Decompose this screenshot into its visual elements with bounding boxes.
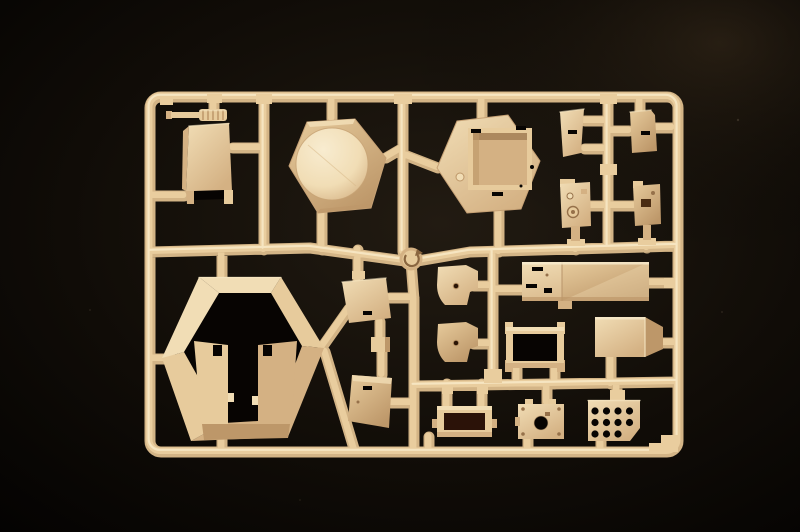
- box-underside-opening: [194, 190, 224, 200]
- skirt-b-dot: [357, 401, 360, 404]
- skirt-a-face: [342, 278, 391, 323]
- box-left-leg: [186, 191, 194, 204]
- grille-hole: [626, 407, 633, 414]
- box-front-face: [186, 123, 232, 191]
- skirt-a-slot: [363, 311, 372, 315]
- gate-block: [600, 94, 617, 104]
- housing-a-detail: [581, 189, 587, 194]
- part-engine-grille: [588, 400, 640, 441]
- fastener: [521, 432, 525, 436]
- rod: [171, 112, 201, 118]
- locating-knob: [456, 173, 464, 181]
- bin-opening: [513, 334, 557, 361]
- shell-inner-sill: [202, 424, 290, 440]
- hatch-frame-top: [437, 406, 492, 410]
- grille-hole: [603, 407, 610, 414]
- plate-slot: [526, 284, 537, 288]
- grille-hole: [614, 430, 621, 437]
- grille-hole: [603, 419, 610, 426]
- part-access-plate: [515, 399, 564, 439]
- gate-block: [664, 278, 674, 288]
- bin-bottom-rail: [506, 363, 564, 368]
- grille-hole: [626, 419, 633, 426]
- recess-side-shadow: [473, 133, 479, 185]
- hatch-frame-bottom: [437, 432, 492, 437]
- part-skirt-wedge-b: [348, 375, 392, 428]
- grille-hole: [603, 430, 610, 437]
- hatch-frame-opening: [444, 413, 485, 430]
- folded-plate-face: [595, 317, 645, 357]
- gate-block: [207, 94, 222, 103]
- part-open-frame-bin: [505, 322, 565, 372]
- photo-stage: [0, 0, 800, 532]
- panel-slot: [492, 192, 503, 196]
- box-right-leg: [224, 190, 233, 204]
- spacer-side: [385, 337, 390, 352]
- wedge-a-slot: [568, 130, 577, 134]
- grille-hole: [614, 407, 621, 414]
- wedge-b-slot: [641, 131, 650, 135]
- bracket-a-hole: [453, 283, 459, 289]
- plate-top-highlight: [522, 262, 649, 265]
- part-spacer-block: [371, 337, 390, 352]
- part-folded-plate: [595, 317, 663, 357]
- recess-floor: [473, 133, 527, 185]
- access-plate-notch: [545, 412, 550, 416]
- sprue-photograph: [0, 0, 800, 532]
- shell-tab: [228, 393, 234, 402]
- gate-block: [442, 386, 453, 394]
- grille-hole: [591, 419, 598, 426]
- housing-a-body: [560, 182, 591, 228]
- part-stowage-box: [182, 123, 233, 204]
- recess-wall-shadow: [473, 133, 527, 140]
- housing-b-dot: [651, 191, 655, 195]
- bracket-b-hole: [453, 340, 459, 346]
- grille-hole: [591, 407, 598, 414]
- fastener: [557, 407, 561, 411]
- bin-top-rail: [506, 327, 564, 331]
- plate-slot: [544, 288, 552, 293]
- gate-block: [256, 94, 272, 104]
- housing-a-peg: [571, 226, 580, 241]
- plate-bottom-shadow: [522, 297, 649, 301]
- fastener: [557, 432, 561, 436]
- gate-block: [477, 386, 488, 394]
- shell-tab: [252, 396, 258, 405]
- plate-slot: [532, 267, 543, 271]
- shell-notch: [263, 345, 272, 356]
- folded-plate-highlight: [595, 317, 645, 320]
- part-wedge-panel-a: [560, 109, 584, 157]
- shell-notch: [213, 345, 222, 356]
- gate-block: [484, 369, 502, 383]
- housing-b-peg: [643, 225, 651, 240]
- housing-a-sight-center: [571, 210, 575, 214]
- fastener: [521, 407, 525, 411]
- gate-block: [610, 390, 625, 400]
- gate-block: [352, 271, 365, 279]
- part-hatch-frame: [432, 406, 497, 437]
- gate-block: [394, 94, 412, 104]
- recess-slot: [471, 129, 481, 133]
- plate-dot: [546, 274, 549, 277]
- grille-hole: [591, 430, 598, 437]
- skirt-b-slot: [363, 386, 372, 390]
- grille-hole: [614, 419, 621, 426]
- part-wedge-panel-b: [630, 110, 657, 153]
- small-hole: [520, 185, 523, 188]
- access-plate-side-tab: [515, 417, 520, 426]
- gate-block: [160, 96, 173, 105]
- housing-b-port: [641, 199, 651, 207]
- plate-tab: [558, 301, 572, 309]
- part-skirt-wedge-a: [342, 278, 391, 323]
- gate-block: [600, 164, 617, 175]
- hatch-frame-tab: [432, 419, 437, 428]
- small-hole: [530, 165, 534, 169]
- hatch-frame-tab: [492, 419, 497, 428]
- recess-slot: [516, 126, 526, 130]
- housing-a-dot: [567, 193, 573, 199]
